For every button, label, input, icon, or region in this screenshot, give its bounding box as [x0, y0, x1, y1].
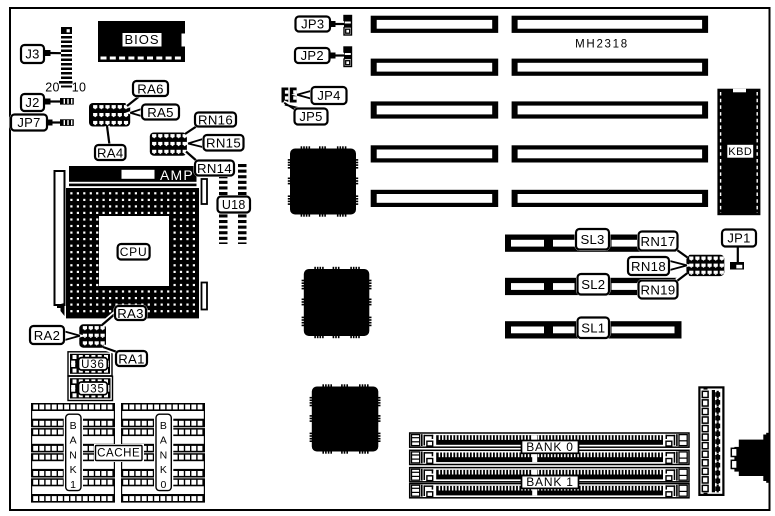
svg-text:1: 1 [70, 479, 76, 491]
svg-text:SL2: SL2 [581, 277, 605, 292]
svg-text:10: 10 [72, 80, 87, 94]
svg-text:U18: U18 [222, 198, 246, 212]
svg-text:N: N [160, 449, 168, 461]
svg-text:MH2318: MH2318 [575, 38, 629, 50]
svg-text:SL1: SL1 [581, 321, 605, 336]
svg-text:B: B [70, 420, 78, 432]
svg-text:JP1: JP1 [727, 231, 750, 246]
svg-text:RN14: RN14 [197, 161, 232, 176]
svg-text:BANK 0: BANK 0 [526, 440, 574, 454]
svg-text:JP7: JP7 [17, 115, 40, 130]
svg-text:KBD: KBD [728, 146, 752, 158]
svg-text:RA1: RA1 [118, 351, 145, 366]
svg-text:AMP: AMP [160, 167, 194, 183]
svg-text:RA6: RA6 [137, 81, 164, 96]
svg-text:CACHE: CACHE [97, 448, 140, 460]
svg-text:SL3: SL3 [580, 232, 604, 247]
svg-text:RN19: RN19 [641, 282, 676, 297]
svg-text:RN16: RN16 [198, 112, 233, 127]
svg-text:J3: J3 [25, 47, 39, 62]
svg-text:A: A [70, 435, 78, 447]
svg-text:JP3: JP3 [301, 17, 324, 32]
svg-text:RN18: RN18 [631, 259, 666, 274]
svg-text:JP4: JP4 [317, 88, 340, 103]
svg-text:K: K [70, 464, 78, 476]
svg-text:BIOS: BIOS [124, 32, 159, 47]
svg-text:B: B [160, 420, 168, 432]
svg-text:RA3: RA3 [117, 306, 144, 321]
svg-text:N: N [69, 449, 77, 461]
svg-text:JP5: JP5 [299, 109, 322, 124]
svg-text:RA5: RA5 [147, 105, 174, 120]
svg-text:0: 0 [160, 479, 166, 491]
svg-text:U36: U36 [81, 359, 105, 371]
svg-text:20: 20 [45, 80, 60, 94]
svg-text:U35: U35 [81, 384, 105, 396]
svg-text:RA4: RA4 [97, 145, 124, 160]
svg-text:BANK 1: BANK 1 [526, 475, 574, 489]
svg-text:RA2: RA2 [34, 328, 61, 343]
svg-text:JP2: JP2 [301, 48, 324, 63]
svg-text:J2: J2 [25, 95, 39, 110]
svg-text:RN17: RN17 [641, 234, 676, 249]
svg-text:K: K [160, 464, 168, 476]
svg-text:A: A [160, 435, 168, 447]
svg-text:CPU: CPU [120, 245, 148, 259]
svg-text:RN15: RN15 [206, 136, 241, 151]
